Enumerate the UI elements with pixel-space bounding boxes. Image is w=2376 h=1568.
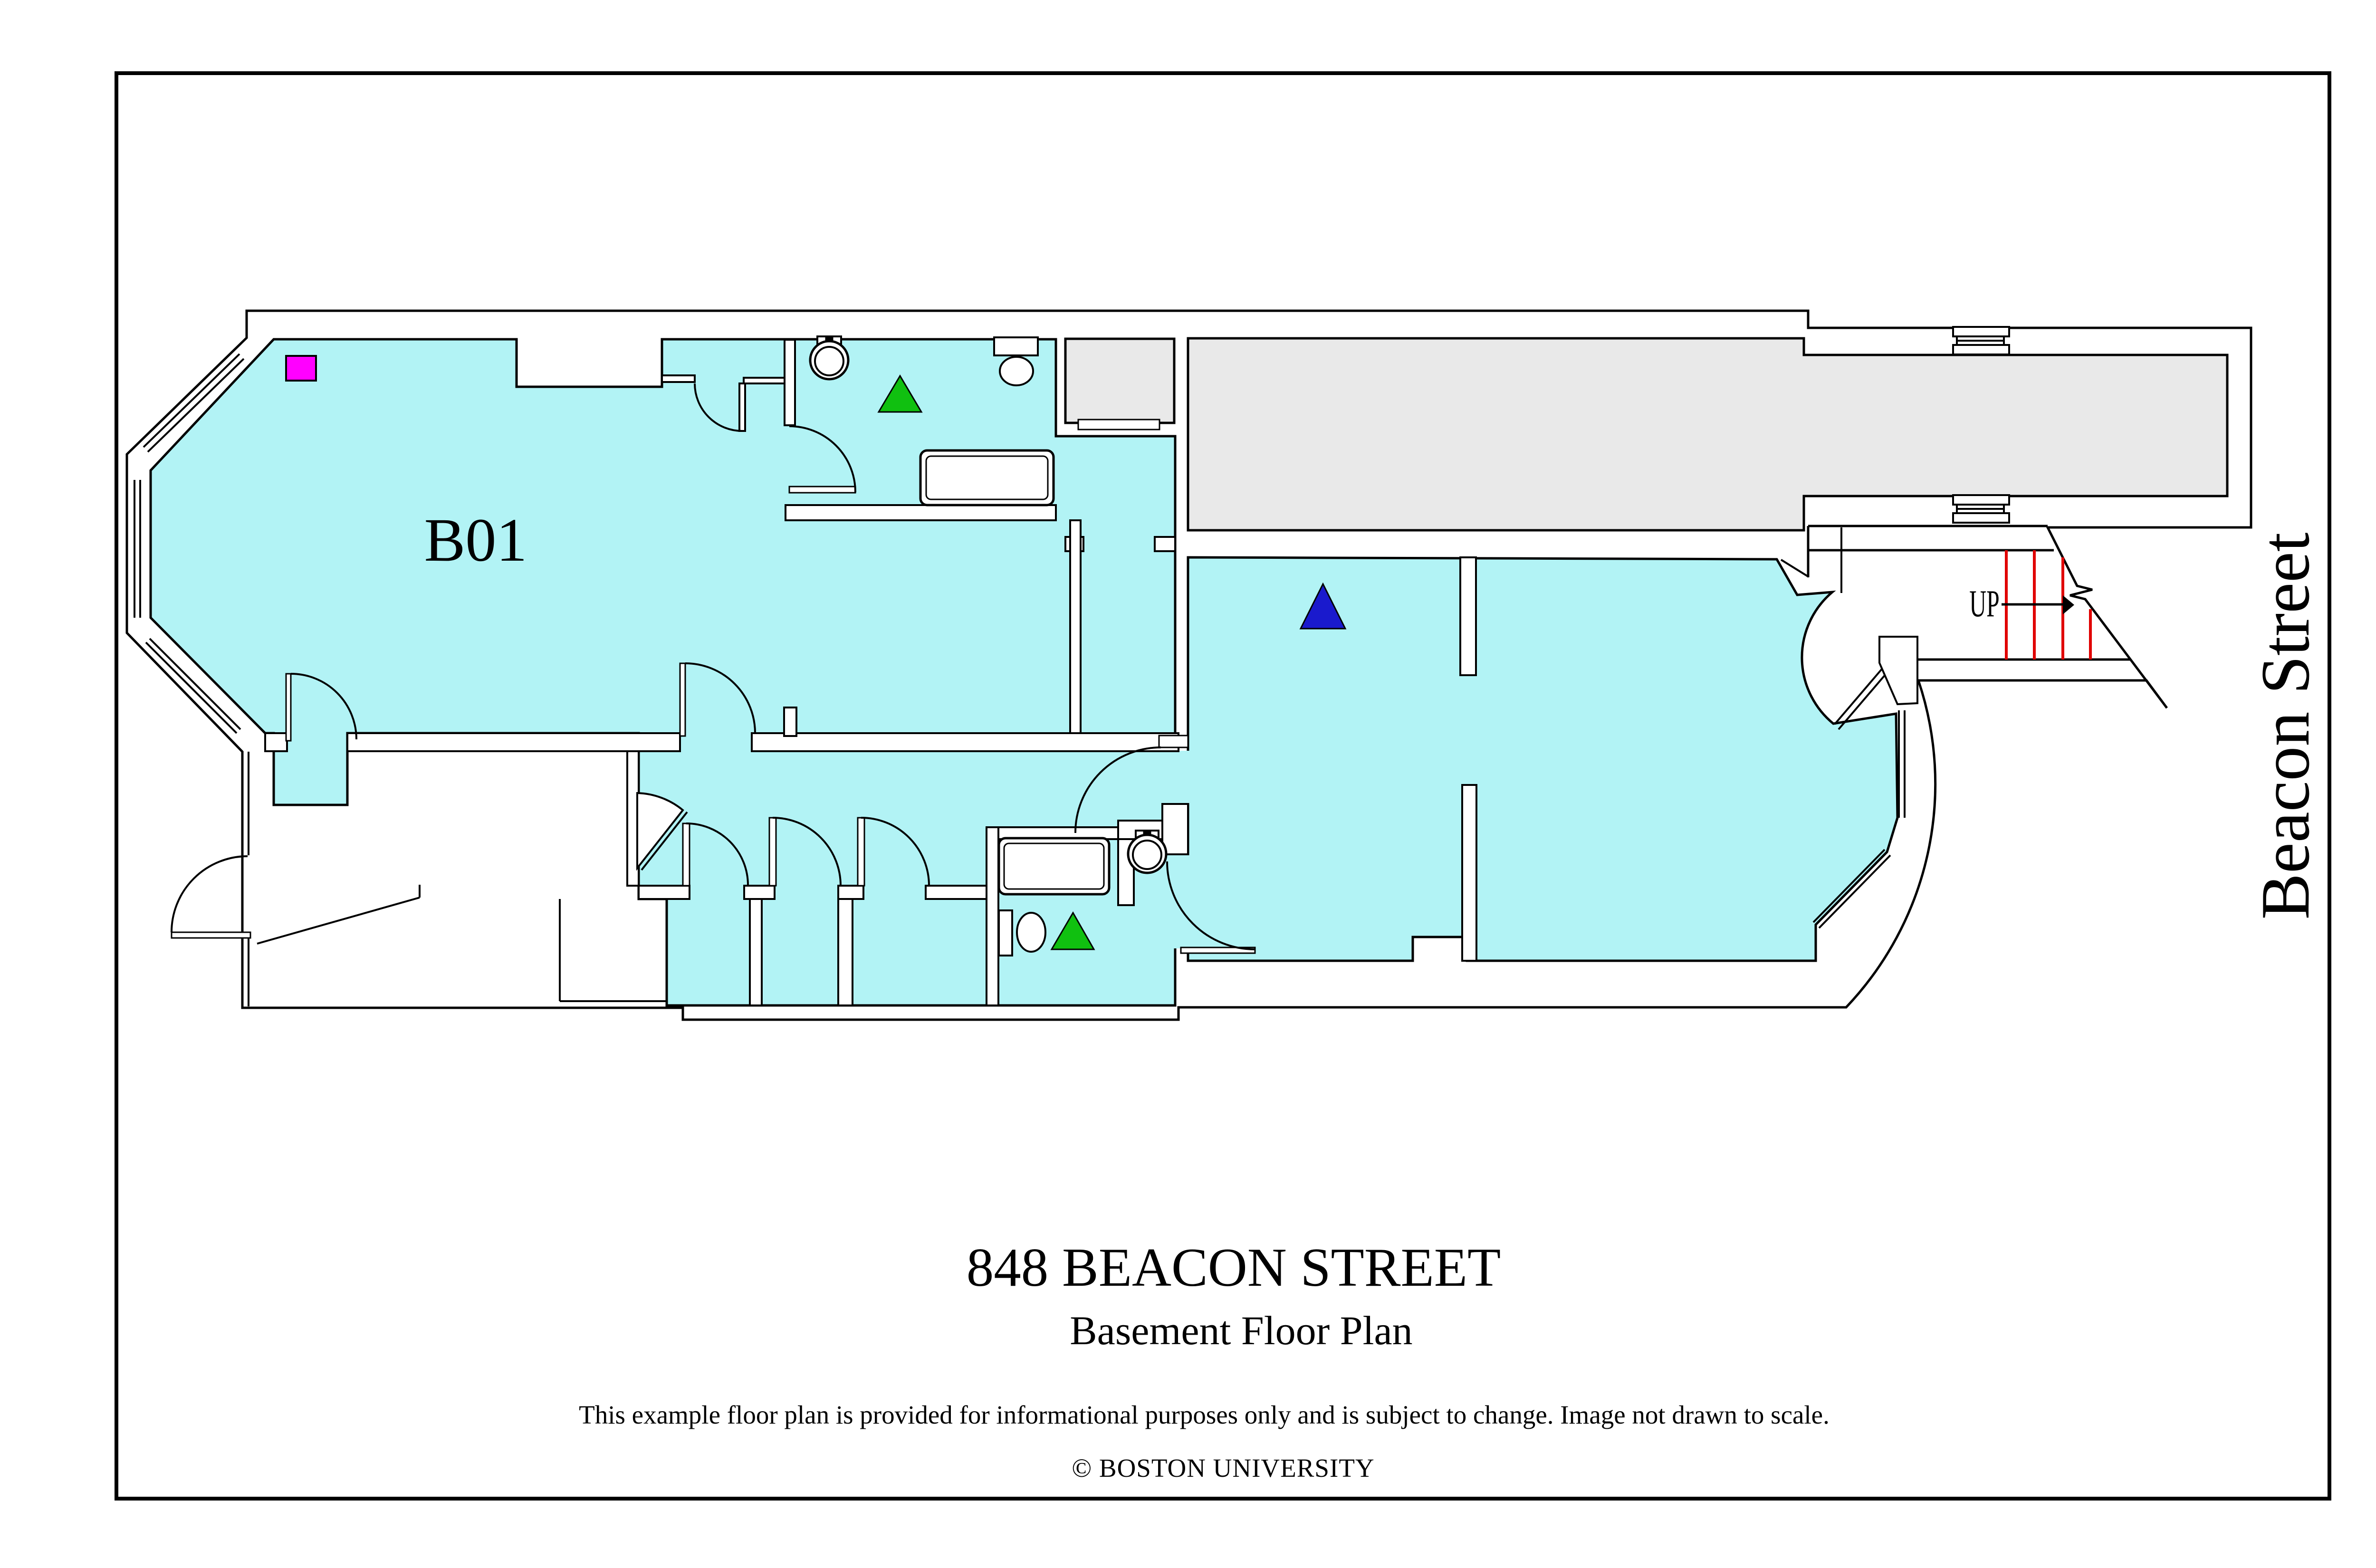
svg-text:Beacon Street: Beacon Street	[2247, 533, 2324, 920]
svg-text:UP: UP	[1969, 583, 1999, 625]
svg-text:B01: B01	[424, 506, 527, 574]
svg-text:848 BEACON STREET: 848 BEACON STREET	[967, 1237, 1501, 1298]
svg-text:© BOSTON UNIVERSITY: © BOSTON UNIVERSITY	[1072, 1453, 1374, 1482]
svg-text:Basement Floor Plan: Basement Floor Plan	[1070, 1308, 1412, 1353]
svg-text:This example floor plan is pro: This example floor plan is provided for …	[579, 1400, 1830, 1429]
